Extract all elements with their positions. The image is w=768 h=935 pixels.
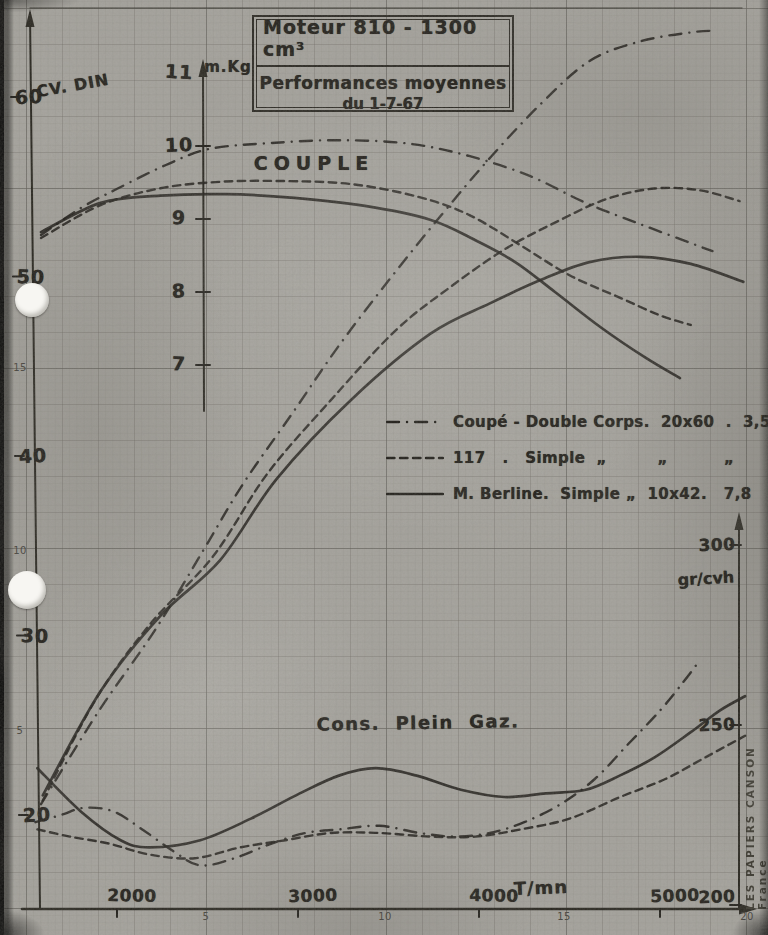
consumption-tick-label: 200: [698, 888, 736, 906]
legend-label: 117 . Simple „ „ „: [453, 449, 734, 467]
torque-coupe-curve: [41, 140, 713, 251]
labels-layer: Moteur 810 - 1300 cm³ Performances moyen…: [0, 0, 768, 935]
dashdot-line-sample-icon: [386, 417, 444, 427]
cons-berline-curve: [37, 696, 745, 847]
paper-stains: [0, 0, 768, 935]
cm-scale-number-left: 5: [17, 726, 24, 736]
scan-corner-bottom-left: [0, 901, 60, 935]
punch-hole: [8, 571, 46, 609]
cm-scale-number-left: 15: [13, 363, 27, 373]
axis-ticks: [11, 97, 741, 917]
legend-label: Coupé - Double Corps. 20x60 . 3,5: [453, 413, 768, 431]
legend: Coupé - Double Corps. 20x60 . 3,5 117 . …: [386, 404, 768, 512]
cons-coupe-curve: [36, 660, 700, 865]
torque-axis-arrow-icon: [199, 59, 208, 77]
cm-scale-number-left: 10: [13, 546, 27, 556]
torque-tick-label: 10: [164, 135, 193, 155]
rpm-tick-label: 2000: [107, 887, 157, 905]
power-tick-label: 20: [22, 805, 51, 825]
torque-y-axis: [203, 70, 204, 411]
rpm-axis-title: T/mn: [513, 878, 568, 898]
rpm-tick-label: 4000: [469, 887, 519, 905]
power-axis-title: CV. DIN: [35, 72, 110, 100]
power-axis-arrow-icon: [26, 9, 35, 27]
cm-scale-number-bottom: 15: [557, 912, 571, 922]
torque-annotation: COUPLE: [254, 154, 375, 173]
torque-tick-label: 7: [171, 354, 186, 374]
cm-scale-number-bottom: 10: [378, 912, 392, 922]
cm-scale-number-bottom: 20: [740, 912, 754, 922]
legend-row-117: 117 . Simple „ „ „: [386, 440, 768, 476]
paper-grain-overlay: [0, 0, 768, 935]
scan-smudge-top-left: [0, 0, 100, 16]
chart-date: du 1-7-67: [343, 95, 424, 113]
torque-axis-title: m.Kg: [204, 60, 252, 75]
chart-title: Moteur 810 - 1300 cm³: [257, 16, 509, 67]
scan-corner-bottom-right: [720, 901, 768, 935]
graph-paper-grid: [0, 0, 768, 935]
scanned-performance-chart-page: Moteur 810 - 1300 cm³ Performances moyen…: [0, 0, 768, 935]
scan-edge-left: [0, 0, 14, 935]
torque-tick-label: 9: [171, 208, 186, 228]
power-tick-label: 60: [14, 87, 43, 107]
consumption-axis-title: gr/cvh: [677, 570, 734, 589]
rpm-axis-arrow-icon: [739, 904, 757, 915]
power-117-curve: [43, 188, 740, 801]
curves-group: [36, 31, 746, 866]
torque-117-curve: [41, 181, 691, 325]
paper-brand-watermark: LES PAPIERS CANSON France: [744, 690, 768, 910]
legend-label: M. Berline. Simple „ 10x42. 7,8: [453, 485, 752, 503]
torque-berline-curve: [41, 194, 680, 378]
power-tick-label: 30: [20, 626, 49, 646]
rpm-tick-label: 5000: [650, 887, 700, 906]
power-coupe-curve: [41, 31, 716, 805]
plot-area: [0, 0, 768, 935]
title-box: Moteur 810 - 1300 cm³ Performances moyen…: [252, 15, 514, 112]
power-y-axis: [30, 13, 40, 909]
scan-edge-right: [759, 0, 768, 935]
punch-hole: [15, 283, 49, 317]
title-box-inner: Moteur 810 - 1300 cm³ Performances moyen…: [256, 19, 510, 108]
legend-row-coupe: Coupé - Double Corps. 20x60 . 3,5: [386, 404, 768, 440]
legend-row-berline: M. Berline. Simple „ 10x42. 7,8: [386, 476, 768, 512]
cm-scale-number-bottom: 5: [203, 912, 210, 922]
power-tick-label: 40: [18, 446, 47, 466]
consumption-tick-label: 300: [698, 536, 736, 554]
torque-tick-label: 8: [172, 281, 187, 300]
rpm-tick-label: 3000: [288, 887, 338, 906]
cons-117-curve: [37, 736, 745, 859]
torque-tick-label: 11: [164, 62, 193, 82]
solid-line-sample-icon: [386, 489, 444, 499]
dashed-line-sample-icon: [386, 453, 444, 463]
consumption-axis-arrow-icon: [735, 512, 744, 530]
consumption-tick-label: 250: [698, 716, 736, 734]
consumption-annotation: Cons. Plein Gaz.: [316, 712, 519, 734]
power-berline-curve: [43, 257, 744, 796]
chart-subtitle: Performances moyennes: [259, 73, 506, 93]
